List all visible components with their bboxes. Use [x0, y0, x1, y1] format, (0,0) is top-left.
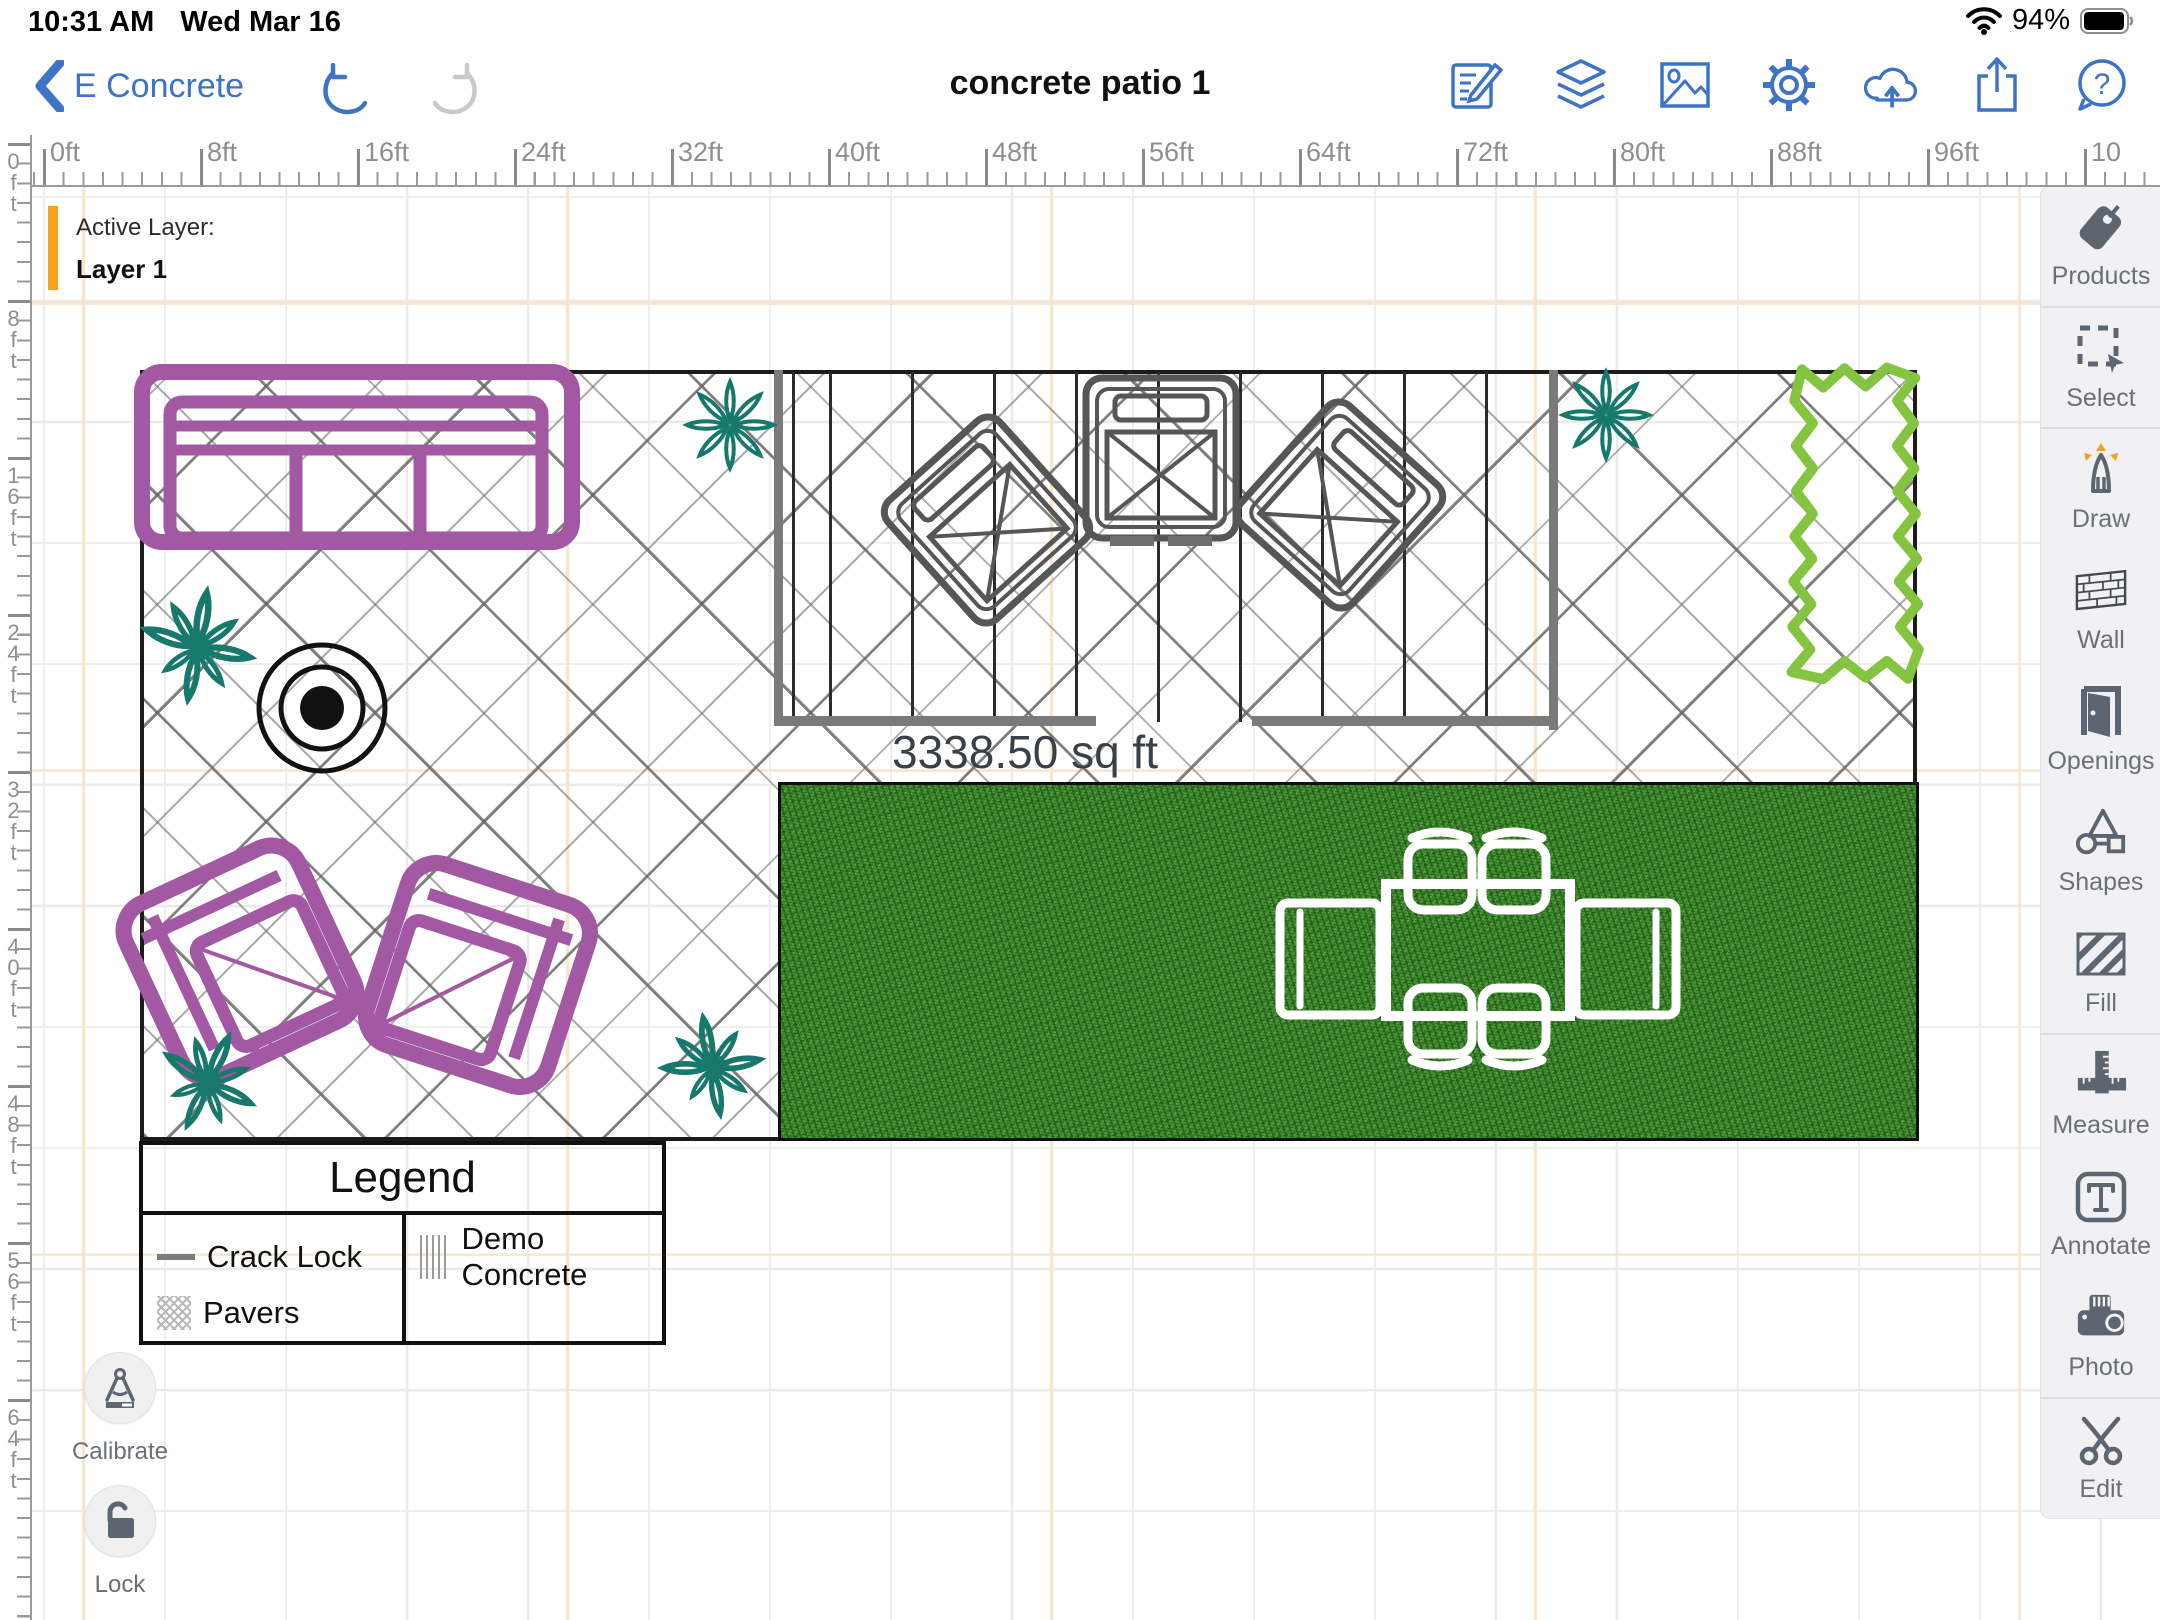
- legend-box[interactable]: Legend Crack Lock Pavers Demo Concrete: [139, 1141, 666, 1345]
- legend-title: Legend: [143, 1145, 662, 1215]
- svg-text:?: ?: [2094, 68, 2111, 101]
- shapes-icon: [2074, 806, 2128, 860]
- sidebar-item-wall[interactable]: Wall: [2041, 549, 2160, 670]
- sidebar-item-photo[interactable]: Photo: [2041, 1276, 2160, 1397]
- sidebar-item-label: Measure: [2052, 1111, 2149, 1140]
- battery-percent: 94%: [2012, 4, 2070, 37]
- cloud-upload-icon: [1864, 57, 1922, 113]
- status-date: Wed Mar 16: [180, 6, 341, 38]
- ruler-major-tick: [8, 928, 30, 931]
- status-bar: 10:31 AMWed Mar 16 94%: [0, 0, 2160, 42]
- pavers-swatch: [157, 1296, 191, 1330]
- calibrate-compass-icon: [100, 1366, 140, 1410]
- sidebar-item-label: Photo: [2068, 1353, 2133, 1382]
- sidebar-item-products[interactable]: Products: [2041, 185, 2160, 306]
- sidebar-item-label: Select: [2066, 384, 2135, 413]
- ruler-major-tick: [1770, 149, 1773, 185]
- ruler-label: 8ft: [207, 137, 237, 168]
- ruler-major-tick: [1142, 149, 1145, 185]
- scissors-icon: [2074, 1413, 2128, 1467]
- notes-button[interactable]: [1448, 56, 1506, 114]
- tool-sidebar: Products Select Draw Wall Openings Shape…: [2040, 185, 2160, 1519]
- lock-button[interactable]: Lock: [60, 1485, 180, 1599]
- layers-button[interactable]: [1552, 56, 1610, 114]
- ruler-label: 10: [2091, 137, 2121, 168]
- active-layer-label: Active Layer:: [76, 206, 215, 242]
- ruler-label: 96ft: [1934, 137, 1979, 168]
- sidebar-item-shapes[interactable]: Shapes: [2041, 791, 2160, 912]
- wall-icon: [2074, 564, 2128, 618]
- ruler-label: 64ft: [2, 1405, 24, 1489]
- ruler-major-tick: [2084, 149, 2087, 185]
- ruler-label: 56ft: [1149, 137, 1194, 168]
- ruler-label: 16ft: [2, 463, 24, 547]
- measure-icon: [2074, 1049, 2128, 1103]
- image-icon: [1657, 57, 1713, 113]
- sidebar-item-select[interactable]: Select: [2041, 306, 2160, 427]
- sidebar-item-label: Edit: [2079, 1475, 2122, 1504]
- demo-concrete-swatch: [420, 1235, 450, 1279]
- ruler-label: 48ft: [992, 137, 1037, 168]
- sidebar-item-label: Products: [2052, 262, 2151, 291]
- legend-item-crack-lock: Crack Lock: [157, 1229, 402, 1285]
- ruler-major-tick: [671, 149, 674, 185]
- door-icon: [2074, 685, 2128, 739]
- draw-icon: [2074, 443, 2128, 497]
- ruler-label: 32ft: [2, 777, 24, 861]
- ruler-label: 0ft: [2, 149, 24, 212]
- active-layer-bar: [48, 206, 58, 290]
- tag-icon: [2074, 200, 2128, 254]
- sidebar-item-label: Fill: [2085, 989, 2117, 1018]
- ruler-label: 16ft: [364, 137, 409, 168]
- ruler-label: 0ft: [50, 137, 80, 168]
- sidebar-item-label: Openings: [2047, 747, 2154, 776]
- ruler-major-tick: [985, 149, 988, 185]
- crack-lock-swatch: [157, 1254, 195, 1260]
- toolbar: E Concrete concrete patio 1 ?: [0, 42, 2160, 135]
- layers-icon: [1552, 57, 1610, 113]
- area-measurement-label: 3338.50 sq ft: [892, 725, 1158, 779]
- legend-item-label: Crack Lock: [207, 1239, 362, 1275]
- sidebar-item-label: Wall: [2077, 626, 2125, 655]
- notes-icon: [1449, 57, 1505, 113]
- share-icon: [1973, 56, 2021, 114]
- sidebar-item-fill[interactable]: Fill: [2041, 912, 2160, 1033]
- ruler-label: 64ft: [1306, 137, 1351, 168]
- ruler-major-tick: [43, 149, 46, 185]
- unlock-icon: [100, 1500, 140, 1542]
- active-layer-name: Layer 1: [76, 254, 215, 285]
- ruler-major-tick: [8, 614, 30, 617]
- ruler-label: 24ft: [2, 620, 24, 704]
- ruler-major-tick: [1299, 149, 1302, 185]
- grass-area[interactable]: [778, 782, 1919, 1141]
- ruler-label: 40ft: [835, 137, 880, 168]
- ruler-major-tick: [514, 149, 517, 185]
- sidebar-item-edit[interactable]: Edit: [2041, 1397, 2160, 1518]
- share-button[interactable]: [1968, 56, 2026, 114]
- ruler-label: 80ft: [1620, 137, 1665, 168]
- demo-concrete-area[interactable]: [778, 372, 1553, 722]
- ruler-major-tick: [8, 1085, 30, 1088]
- sidebar-item-label: Annotate: [2051, 1232, 2151, 1261]
- cloud-upload-button[interactable]: [1864, 56, 1922, 114]
- battery-icon: [2080, 7, 2136, 35]
- annotate-icon: [2074, 1170, 2128, 1224]
- legend-item-pavers: Pavers: [157, 1285, 402, 1341]
- sidebar-item-annotate[interactable]: Annotate: [2041, 1155, 2160, 1276]
- sidebar-item-label: Draw: [2072, 505, 2130, 534]
- active-layer-indicator: Active Layer: Layer 1: [48, 206, 215, 290]
- ruler-horizontal: 0ft8ft16ft24ft32ft40ft48ft56ft64ft72ft80…: [30, 135, 2160, 187]
- fill-icon: [2074, 927, 2128, 981]
- ruler-label: 40ft: [2, 934, 24, 1018]
- sidebar-item-draw[interactable]: Draw: [2041, 427, 2160, 548]
- sidebar-item-label: Shapes: [2059, 868, 2144, 897]
- help-icon: ?: [2072, 57, 2130, 113]
- sidebar-item-measure[interactable]: Measure: [2041, 1033, 2160, 1154]
- select-icon: [2074, 322, 2128, 376]
- legend-item-demo-concrete: Demo Concrete: [420, 1229, 662, 1285]
- ruler-major-tick: [8, 1399, 30, 1402]
- ruler-major-tick: [1456, 149, 1459, 185]
- ruler-major-tick: [8, 143, 30, 146]
- image-button[interactable]: [1656, 56, 1714, 114]
- ruler-major-tick: [357, 149, 360, 185]
- ruler-label: 8ft: [2, 306, 24, 369]
- calibrate-button[interactable]: Calibrate: [60, 1352, 180, 1466]
- status-time-date: 10:31 AMWed Mar 16: [28, 6, 341, 39]
- legend-item-label: Pavers: [203, 1295, 299, 1331]
- ruler-label: 48ft: [2, 1091, 24, 1175]
- ruler-major-tick: [8, 300, 30, 303]
- ruler-label: 32ft: [678, 137, 723, 168]
- ruler-major-tick: [1613, 149, 1616, 185]
- lock-label: Lock: [95, 1571, 146, 1599]
- ruler-label: 88ft: [1777, 137, 1822, 168]
- gear-icon: [1760, 56, 1818, 114]
- ruler-major-tick: [8, 1242, 30, 1245]
- ruler-major-tick: [828, 149, 831, 185]
- legend-item-label: Demo Concrete: [462, 1221, 662, 1293]
- ruler-major-tick: [8, 771, 30, 774]
- ruler-major-tick: [1927, 149, 1930, 185]
- help-button[interactable]: ?: [2072, 56, 2130, 114]
- ruler-major-tick: [8, 457, 30, 460]
- ruler-label: 72ft: [1463, 137, 1508, 168]
- ruler-major-tick: [200, 149, 203, 185]
- ruler-label: 24ft: [521, 137, 566, 168]
- ruler-label: 56ft: [2, 1248, 24, 1332]
- wifi-icon: [1966, 6, 2002, 36]
- calibrate-label: Calibrate: [72, 1438, 168, 1466]
- sidebar-item-openings[interactable]: Openings: [2041, 670, 2160, 791]
- settings-button[interactable]: [1760, 56, 1818, 114]
- camera-icon: [2074, 1291, 2128, 1345]
- ruler-vertical: 0ft8ft16ft24ft32ft40ft48ft56ft64ft: [0, 135, 32, 1620]
- status-time: 10:31 AM: [28, 6, 154, 38]
